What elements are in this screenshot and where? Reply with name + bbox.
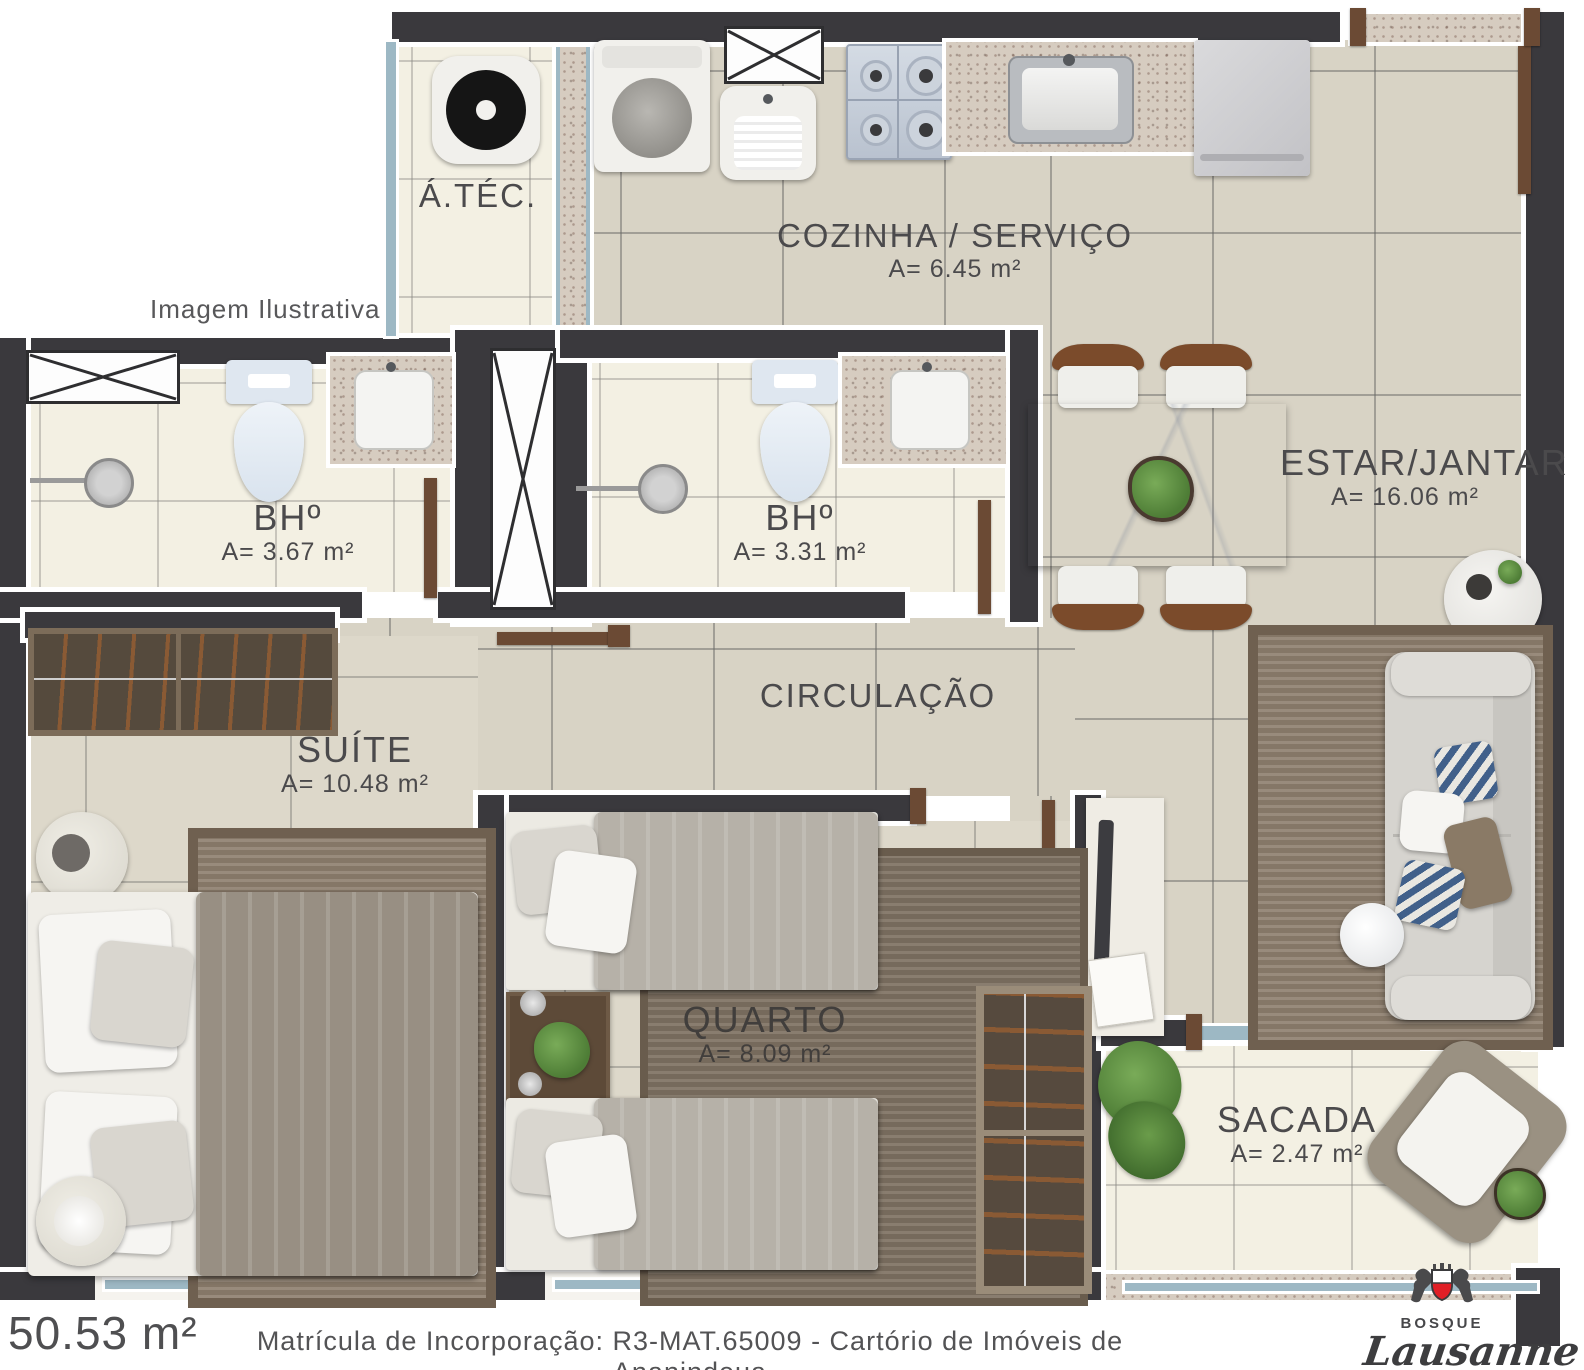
stove-grid-v: [897, 46, 899, 158]
ventilation-shaft: [490, 348, 556, 610]
room-name-circulacao: CIRCULAÇÃO: [748, 678, 1008, 715]
label-estar: ESTAR/JANTAR A= 16.06 m²: [1280, 443, 1530, 512]
room-name-estar: ESTAR/JANTAR: [1280, 443, 1530, 483]
burner-1-center: [870, 70, 882, 82]
sacada-plant: [1092, 1038, 1196, 1188]
label-atec: Á.TÉC.: [397, 178, 559, 215]
coffee-table: [1340, 903, 1404, 967]
table-plant: [1128, 456, 1194, 522]
water-heater: [432, 56, 540, 164]
room-area-sacada: A= 2.47 m²: [1197, 1140, 1397, 1169]
bh1-x-icon: [29, 353, 177, 401]
duct-x-icon: [727, 29, 821, 81]
bed-blanket: [196, 892, 478, 1276]
shaft-x-icon: [493, 351, 553, 607]
nightstand-plant: [534, 1022, 590, 1078]
window-box-bh1: [26, 350, 180, 404]
granite-sill-entry: [1352, 14, 1532, 42]
twin-bed-2: [506, 1098, 878, 1270]
vanity-bh1: [330, 356, 452, 464]
bed-blanket: [594, 1098, 878, 1270]
room-name-quarto: QUARTO: [590, 1000, 940, 1040]
sink-basin: [1022, 68, 1118, 130]
dining-chair: [1160, 344, 1252, 408]
tv-rack: [1086, 798, 1164, 1036]
washing-machine: [594, 40, 710, 172]
bed-pillow: [544, 1133, 639, 1239]
nightstand-lamp-1: [520, 990, 546, 1016]
bed-pillow-front: [89, 939, 195, 1048]
room-name-bh1: BHº: [168, 498, 408, 538]
burner-3-center: [870, 124, 882, 136]
wardrobe-divider: [984, 1130, 1084, 1136]
sofa-armrest-bottom: [1391, 976, 1531, 1020]
side-table-decor: [1466, 574, 1492, 600]
twin-bed-1: [506, 812, 878, 990]
dining-chair: [1052, 344, 1144, 408]
bed-blanket: [594, 812, 878, 990]
label-suite: SUÍTE A= 10.48 m²: [185, 730, 525, 799]
burner-3: [860, 114, 892, 146]
kitchen-sink: [1008, 56, 1134, 144]
washer-drum: [612, 78, 692, 158]
vanity-sink-bh1: [354, 370, 434, 450]
quarto-door-post: [910, 788, 926, 824]
tub-faucet: [763, 94, 773, 104]
chevron-pillow: [1393, 858, 1467, 932]
duct-box-kitchen: [724, 26, 824, 84]
room-area-quarto: A= 8.09 m²: [590, 1040, 940, 1069]
wardrobe-rail: [34, 678, 332, 680]
chair-seat: [1058, 566, 1138, 608]
suite-wardrobe: [28, 628, 338, 736]
suite-nightstand-bottom: [36, 1176, 126, 1266]
room-area-suite: A= 10.48 m²: [185, 770, 525, 799]
window-atec: [386, 42, 396, 336]
toilet-bowl: [760, 402, 830, 502]
burner-2-center: [919, 69, 933, 83]
brand-logo: BOSQUE Lausanne: [1364, 1262, 1520, 1370]
label-sacada: SACADA A= 2.47 m²: [1197, 1100, 1397, 1169]
entry-door-post-left: [1350, 8, 1366, 46]
registration-text: Matrícula de Incorporação: R3-MAT.65009 …: [250, 1326, 1130, 1370]
shower-arm-bh1: [30, 478, 92, 483]
bh1-door-leaf: [424, 478, 437, 598]
stove: [846, 44, 952, 160]
toilet-flush: [248, 374, 290, 388]
sofa: [1385, 652, 1535, 1020]
side-table-plant: [1498, 560, 1522, 584]
floor-plan: Imagem Ilustrativa Á.TÉC. COZINHA / SERV…: [0, 0, 1584, 1370]
toilet-bowl: [234, 402, 304, 502]
burner-2: [906, 56, 946, 96]
sink-faucet: [1063, 54, 1075, 66]
room-area-estar: A= 16.06 m²: [1280, 483, 1530, 512]
burner-4-center: [919, 123, 933, 137]
chair-back: [1052, 604, 1144, 630]
burner-1: [860, 60, 892, 92]
room-area-bh1: A= 3.67 m²: [168, 538, 408, 567]
chair-seat: [1058, 366, 1138, 408]
suite-lamp-2: [54, 1196, 104, 1246]
suite-nightstand-top: [36, 812, 128, 904]
wardrobe-divider: [176, 634, 181, 730]
burner-4: [906, 110, 946, 150]
suite-door-post: [608, 625, 630, 647]
tub-basin: [734, 116, 802, 170]
total-area: 50.53 m²: [8, 1306, 198, 1360]
label-cozinha: COZINHA / SERVIÇO A= 6.45 m²: [700, 218, 1210, 284]
chair-seat: [1166, 366, 1246, 408]
sofa-armrest-top: [1391, 652, 1531, 696]
toilet-flush: [774, 374, 816, 388]
wall-left: [0, 338, 26, 1300]
wall-bh2-top: [560, 330, 1012, 358]
wall-top: [392, 12, 1340, 42]
room-name-bh2: BHº: [680, 498, 920, 538]
label-bh2: BHº A= 3.31 m²: [680, 498, 920, 567]
brand-name-script: Lausanne: [1361, 1332, 1523, 1370]
sacada-small-plant: [1494, 1168, 1546, 1220]
toilet-bh2: [752, 360, 838, 508]
label-circulacao: CIRCULAÇÃO: [748, 678, 1008, 715]
room-area-cozinha: A= 6.45 m²: [700, 255, 1210, 284]
dining-chair: [1160, 566, 1252, 630]
quarto-wardrobe: [976, 986, 1092, 1294]
entry-door-leaf: [1518, 46, 1531, 194]
laundry-tub: [720, 86, 816, 180]
vanity-bh2: [842, 356, 1006, 464]
room-name-sacada: SACADA: [1197, 1100, 1397, 1140]
label-quarto: QUARTO A= 8.09 m²: [590, 1000, 940, 1069]
suite-door-leaf: [497, 632, 613, 645]
bh2-door-leaf: [978, 500, 991, 614]
refrigerator: [1194, 40, 1310, 176]
room-name-suite: SUÍTE: [185, 730, 525, 770]
toilet-bh1: [226, 360, 312, 508]
chair-seat: [1166, 566, 1246, 608]
chair-back: [1160, 604, 1252, 630]
watermark: Imagem Ilustrativa: [150, 294, 380, 325]
room-name-atec: Á.TÉC.: [397, 178, 559, 215]
heater-fan-hub: [476, 100, 496, 120]
nightstand-lamp-2: [518, 1072, 542, 1096]
fridge-handle: [1200, 154, 1304, 161]
washer-panel: [602, 46, 702, 68]
room-area-bh2: A= 3.31 m²: [680, 538, 920, 567]
room-name-cozinha: COZINHA / SERVIÇO: [700, 218, 1210, 255]
stove-grid-h: [848, 99, 950, 101]
magazine: [1088, 952, 1155, 1027]
label-bh1: BHº A= 3.67 m²: [168, 498, 408, 567]
granite-divider-atec-cozinha: [556, 40, 590, 336]
kitchen-counter: [946, 42, 1194, 152]
wardrobe-rail: [1024, 994, 1026, 1286]
shower-head-bh1: [84, 458, 134, 508]
vanity-sink-bh2: [890, 370, 970, 450]
vanity-faucet-bh2: [922, 362, 932, 372]
dining-table: [1028, 404, 1286, 566]
crest-icon: [1403, 1262, 1481, 1308]
vanity-faucet-bh1: [386, 362, 396, 372]
dining-chair: [1052, 566, 1144, 630]
suite-lamp: [52, 834, 90, 872]
bed-pillow: [544, 849, 639, 955]
entry-door-post-right: [1524, 8, 1540, 46]
